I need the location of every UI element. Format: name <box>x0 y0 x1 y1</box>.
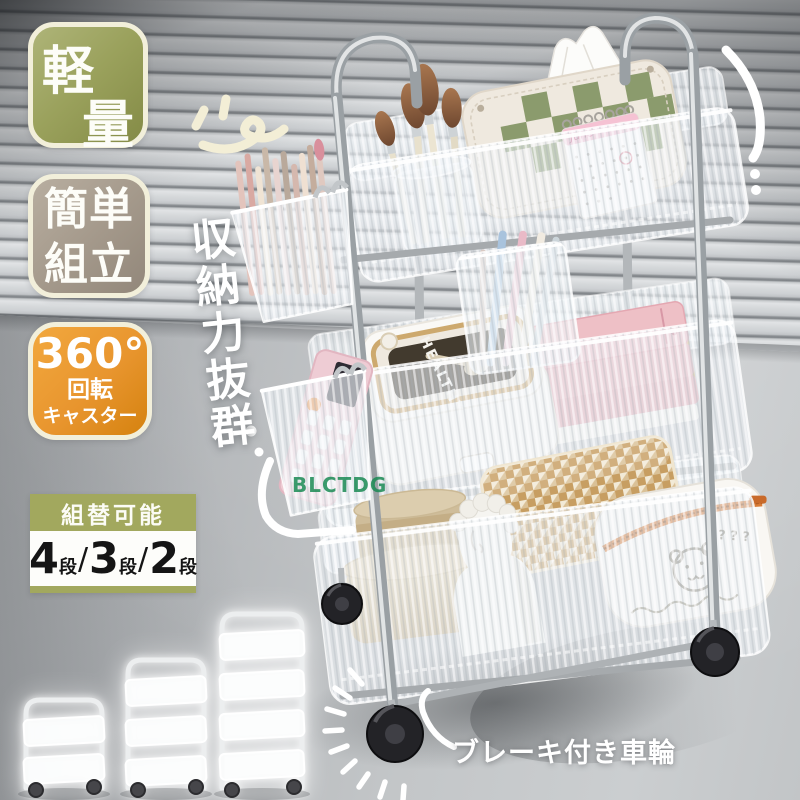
brand-watermark: BLCTDG <box>292 473 387 497</box>
tier-option-3: 3 <box>89 538 119 581</box>
tier-unit: 段 <box>59 553 77 581</box>
separator: / <box>77 542 89 581</box>
reconfig-options: 4段/3段/2段 <box>30 531 196 586</box>
badge-lightweight: 軽 量 <box>28 22 148 148</box>
wheel-emphasis-dashes <box>325 670 404 800</box>
badge-360-degree: 360° <box>33 331 147 377</box>
brake-wheel-label: ブレーキ付き車輪 <box>452 731 676 770</box>
brake-arrow <box>422 691 454 747</box>
reconfig-header: 組替可能 <box>30 494 196 531</box>
tier-unit: 段 <box>119 553 137 581</box>
badge-easy-line2: 組立 <box>33 237 145 292</box>
tier-unit: 段 <box>179 553 197 581</box>
cream-squiggle-doodle <box>196 99 284 149</box>
product-image: June <box>0 0 800 800</box>
motion-line-top-right <box>726 50 761 195</box>
badge-lightweight-char2: 量 <box>82 83 134 158</box>
badge-360-caster-label: キャスター <box>33 403 147 429</box>
tier-option-4: 4 <box>29 538 59 581</box>
tier-option-2: 2 <box>149 538 179 581</box>
badge-360-rotation: 回転 <box>33 377 147 403</box>
badge-easy-line1: 簡単 <box>33 182 145 237</box>
reconfig-box: 組替可能 4段/3段/2段 <box>30 494 196 593</box>
badge-easy-assembly: 簡単 組立 <box>28 174 150 298</box>
badge-360-caster: 360° 回転 キャスター <box>28 322 152 440</box>
separator: / <box>137 542 149 581</box>
